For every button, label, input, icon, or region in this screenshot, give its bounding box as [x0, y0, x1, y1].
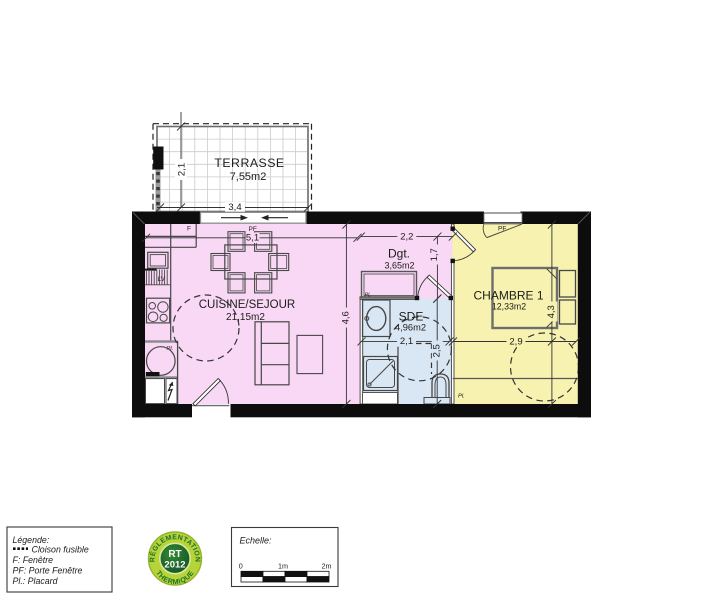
svg-text:Dgt.: Dgt. — [388, 247, 410, 261]
svg-text:PF: PF — [498, 226, 506, 233]
svg-text:2,2: 2,2 — [400, 231, 413, 242]
svg-text:3,4: 3,4 — [228, 202, 241, 213]
svg-text:Echelle:: Echelle: — [240, 536, 273, 546]
svg-text:Cloison fusible: Cloison fusible — [32, 545, 89, 555]
svg-text:CHAMBRE 1: CHAMBRE 1 — [473, 288, 543, 302]
svg-text:2,1: 2,1 — [177, 163, 188, 176]
svg-text:2m: 2m — [322, 562, 332, 571]
svg-text:PF: PF — [249, 226, 257, 233]
svg-text:5,1: 5,1 — [246, 233, 259, 244]
svg-text:PF: Porte Fenêtre: PF: Porte Fenêtre — [13, 566, 83, 576]
svg-text:1m: 1m — [278, 562, 288, 571]
svg-text:4,96m2: 4,96m2 — [395, 323, 426, 333]
svg-text:4,6: 4,6 — [341, 311, 352, 324]
svg-text:Pl.: Pl. — [365, 293, 371, 299]
svg-text:RT: RT — [168, 549, 181, 560]
svg-text:2,1: 2,1 — [400, 336, 413, 347]
svg-text:TERRASSE: TERRASSE — [214, 156, 284, 170]
svg-text:Légende:: Légende: — [13, 535, 50, 545]
svg-text:1,7: 1,7 — [429, 248, 440, 261]
svg-text:3,65m2: 3,65m2 — [384, 261, 414, 271]
svg-text:Pl.: Pl. — [458, 394, 465, 400]
svg-text:LV: LV — [158, 276, 166, 283]
svg-text:0: 0 — [239, 562, 243, 571]
svg-text:12,33m2: 12,33m2 — [492, 302, 526, 312]
svg-text:SDE: SDE — [399, 310, 424, 324]
svg-text:Pl.: Placard: Pl.: Placard — [13, 576, 59, 586]
svg-text:F: F — [187, 226, 191, 233]
svg-text:2012: 2012 — [164, 560, 185, 571]
svg-text:21,15m2: 21,15m2 — [226, 312, 265, 323]
svg-text:CUISINE/SEJOUR: CUISINE/SEJOUR — [199, 299, 296, 311]
svg-text:F: Fenêtre: F: Fenêtre — [13, 555, 54, 565]
svg-text:7,55m2: 7,55m2 — [230, 171, 267, 183]
svg-text:4,3: 4,3 — [546, 305, 557, 318]
svg-text:2,5: 2,5 — [432, 344, 443, 357]
svg-text:2,9: 2,9 — [509, 336, 522, 347]
